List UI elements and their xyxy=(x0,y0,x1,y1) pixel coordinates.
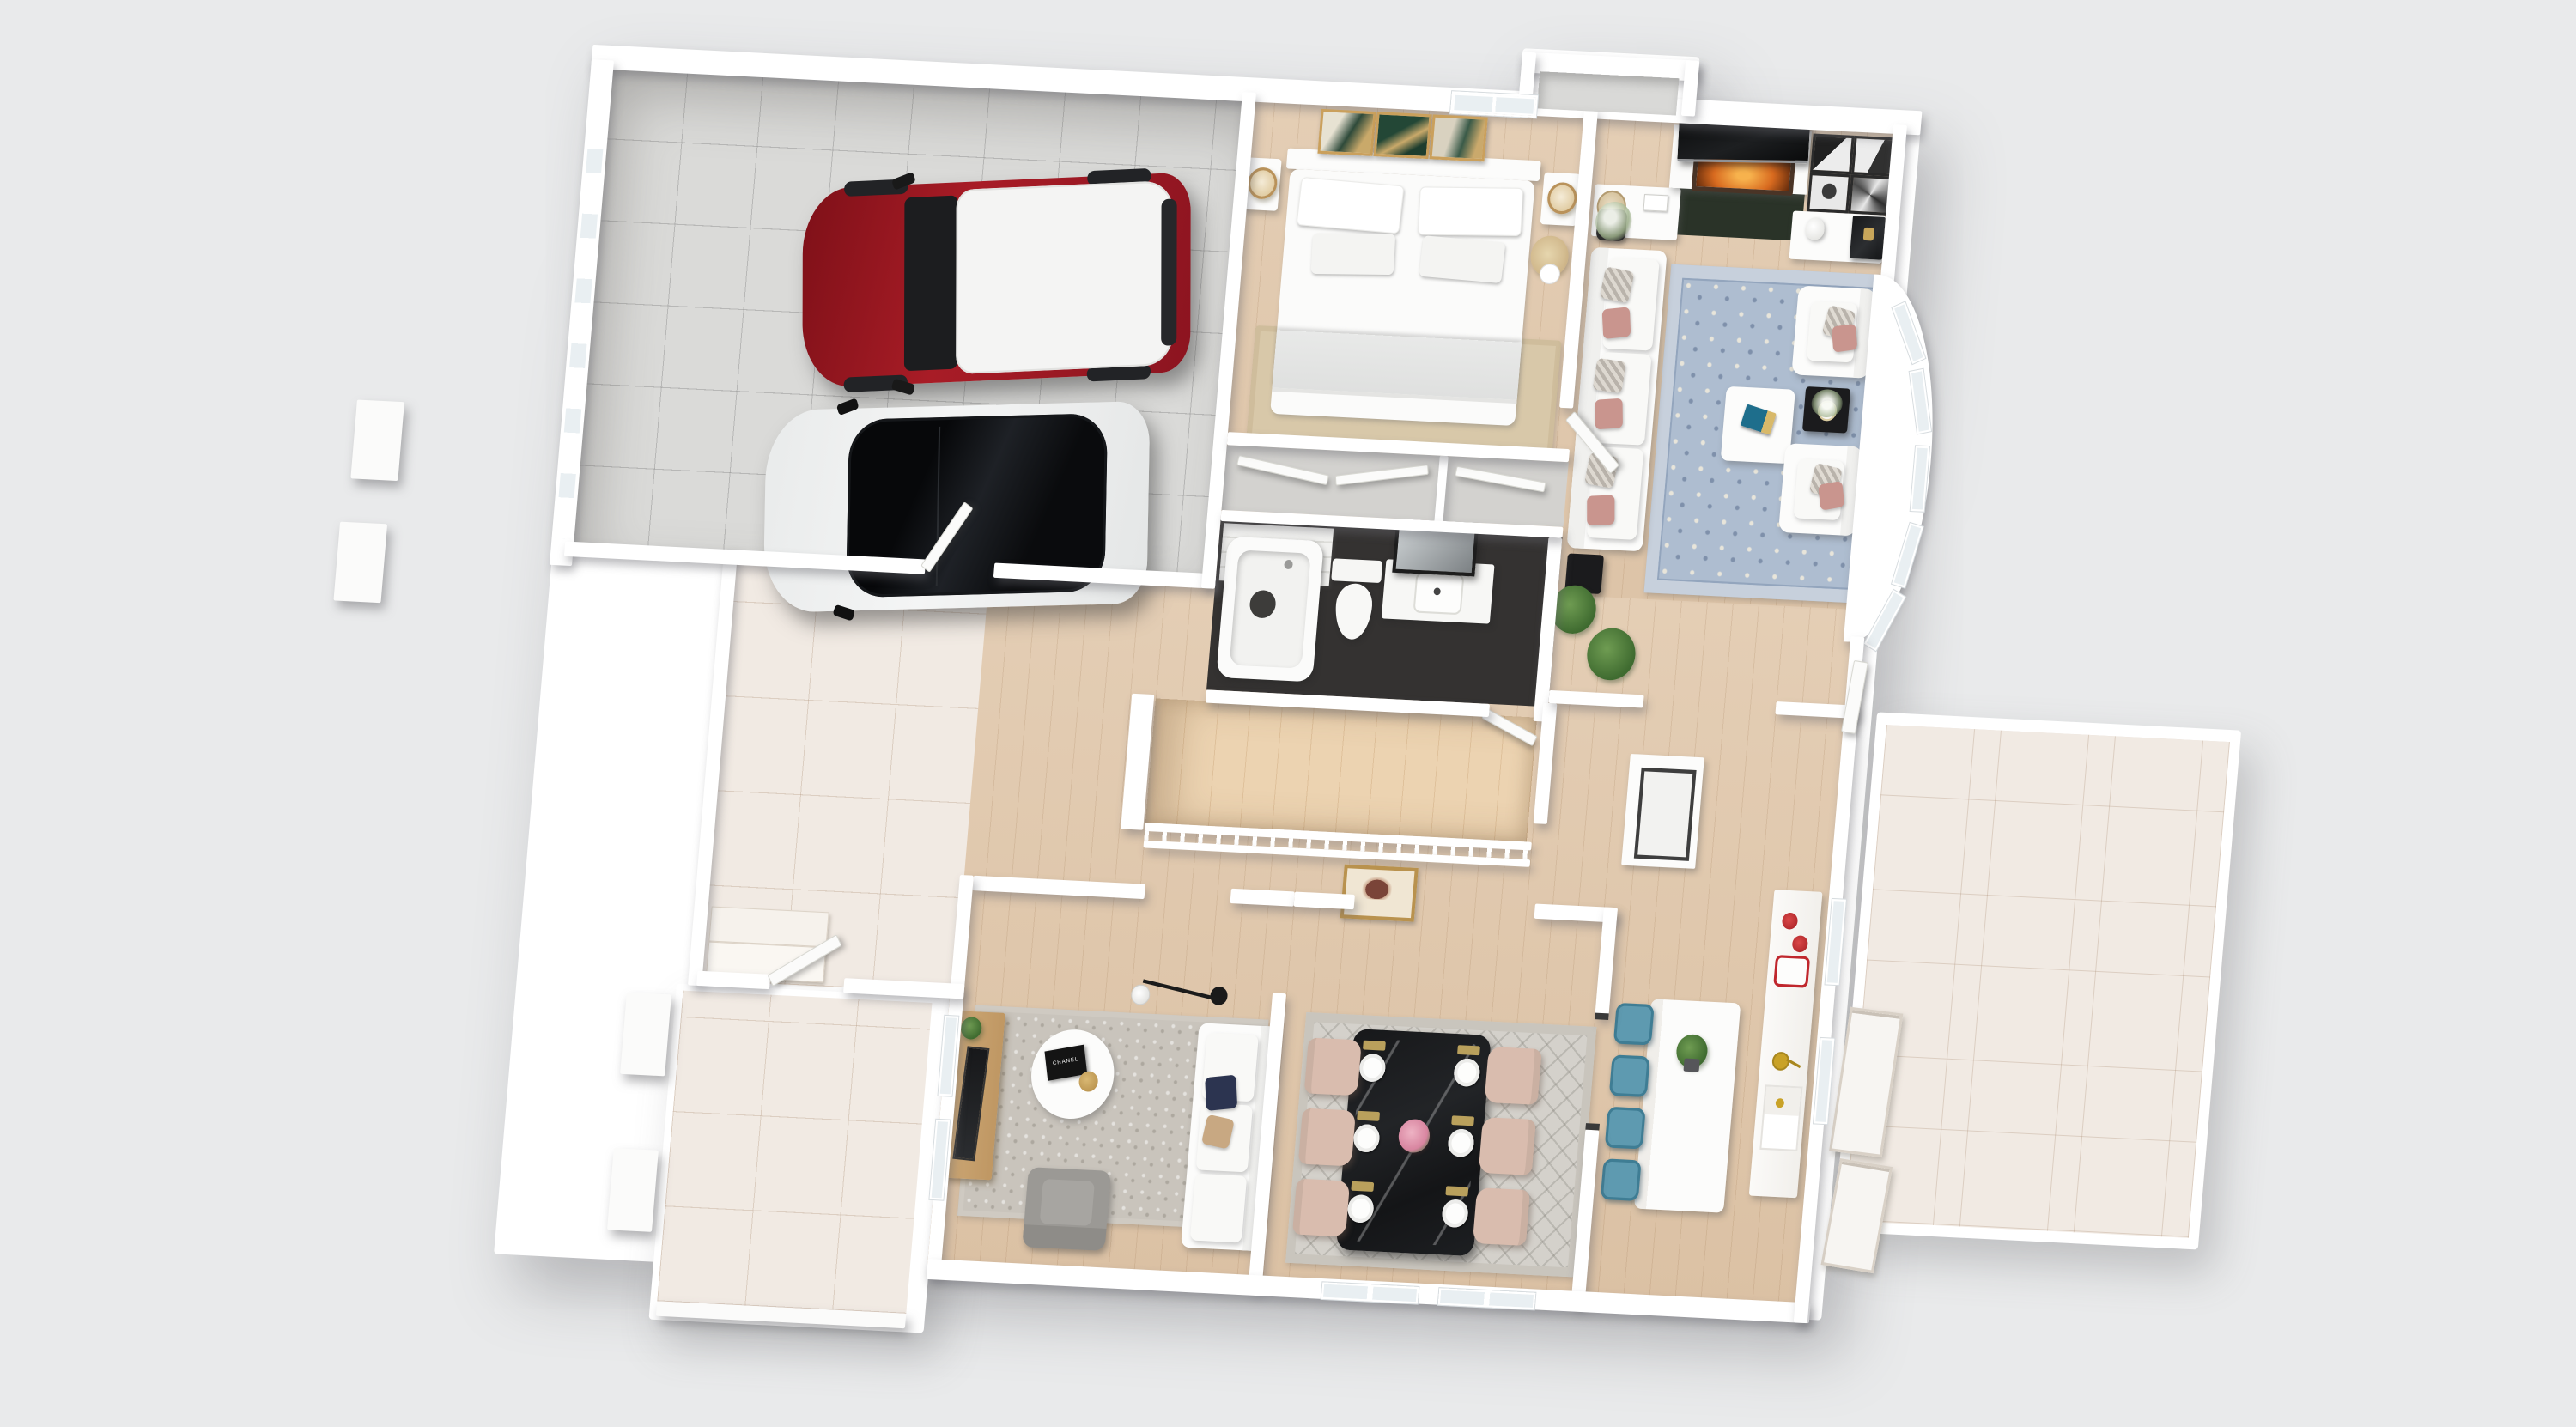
bed-pillow xyxy=(1311,233,1396,275)
bedroom-art xyxy=(1373,112,1431,159)
dining-chair xyxy=(1473,1187,1530,1246)
opening-dark-trim xyxy=(1595,1013,1609,1020)
sofa-pillow-pink xyxy=(1587,495,1614,525)
floor-plan: CHANEL xyxy=(494,60,2324,1427)
porch-wall-stub xyxy=(607,1148,659,1232)
gold-napkin xyxy=(1351,1181,1374,1192)
exterior-wall-stub xyxy=(350,399,404,481)
staircase-treads xyxy=(1145,698,1537,841)
stair-artwork-motif xyxy=(1362,877,1393,901)
bed-pillow xyxy=(1297,177,1405,234)
gray-armchair-cushion xyxy=(1040,1179,1095,1226)
gold-napkin xyxy=(1451,1115,1474,1126)
armchair-bottom xyxy=(1778,443,1863,536)
bar-stool xyxy=(1613,1003,1655,1046)
gold-vase xyxy=(1863,228,1874,241)
floor-plan-scene: CHANEL xyxy=(0,0,2576,1427)
sofa-pillow-pink xyxy=(1595,398,1623,430)
gold-napkin xyxy=(1457,1045,1480,1055)
patio-floor xyxy=(1845,725,2230,1238)
bar-stool xyxy=(1605,1107,1646,1150)
armchair-pillow-pink xyxy=(1832,324,1857,353)
bedroom-art xyxy=(1429,114,1487,161)
pantry-frame xyxy=(1634,768,1697,861)
bar-stool xyxy=(1609,1054,1650,1097)
exterior-wall-stub xyxy=(333,522,387,604)
island-plant-pot xyxy=(1683,1059,1699,1072)
red-suv-rear-glass xyxy=(1161,198,1176,345)
armchair-pillow-pink xyxy=(1818,481,1844,511)
gray-armchair-back xyxy=(1022,1224,1106,1251)
red-suv-roof xyxy=(956,180,1174,374)
dining-chair xyxy=(1479,1117,1536,1175)
opening-dark-trim xyxy=(1585,1123,1600,1130)
dining-chair xyxy=(1298,1108,1356,1167)
gold-napkin xyxy=(1363,1041,1386,1051)
family-top-wall-b xyxy=(1230,889,1295,907)
sink-niche xyxy=(1759,1084,1802,1151)
foyer-step xyxy=(708,906,829,947)
magazine xyxy=(1643,194,1668,212)
sofa-pillow-pink xyxy=(1602,307,1631,339)
red-tray xyxy=(1773,955,1810,988)
dining-front-window xyxy=(1321,1282,1419,1303)
dining-front-window xyxy=(1438,1288,1536,1309)
dining-chair xyxy=(1485,1047,1542,1105)
bedroom-window xyxy=(1450,91,1538,118)
porch-wall-stub xyxy=(620,993,671,1077)
gold-napkin xyxy=(1357,1111,1380,1121)
red-suv xyxy=(802,172,1190,388)
bed-pillow xyxy=(1418,186,1523,236)
red-suv-windshield xyxy=(904,195,958,371)
porch-floor xyxy=(657,991,932,1314)
toilet-tank xyxy=(1331,558,1382,583)
dining-top-wall-a xyxy=(1294,891,1355,909)
armchair-top xyxy=(1791,286,1876,379)
dining-chair xyxy=(1292,1179,1350,1237)
bar-stool xyxy=(1601,1158,1642,1201)
bed-pillow xyxy=(1419,235,1505,283)
dining-chair xyxy=(1304,1037,1362,1096)
sofa-pillow-gray xyxy=(1593,358,1627,393)
chimney-floor xyxy=(1537,71,1680,115)
gray-armchair xyxy=(1022,1167,1111,1251)
framed-art-bw xyxy=(1810,134,1855,175)
bed xyxy=(1266,149,1541,432)
family-sofa-cushion xyxy=(1190,1174,1247,1243)
framed-art-bw xyxy=(1807,173,1851,214)
gold-napkin xyxy=(1445,1186,1468,1196)
pillow-navy xyxy=(1205,1075,1237,1111)
bedroom-art xyxy=(1317,109,1376,156)
